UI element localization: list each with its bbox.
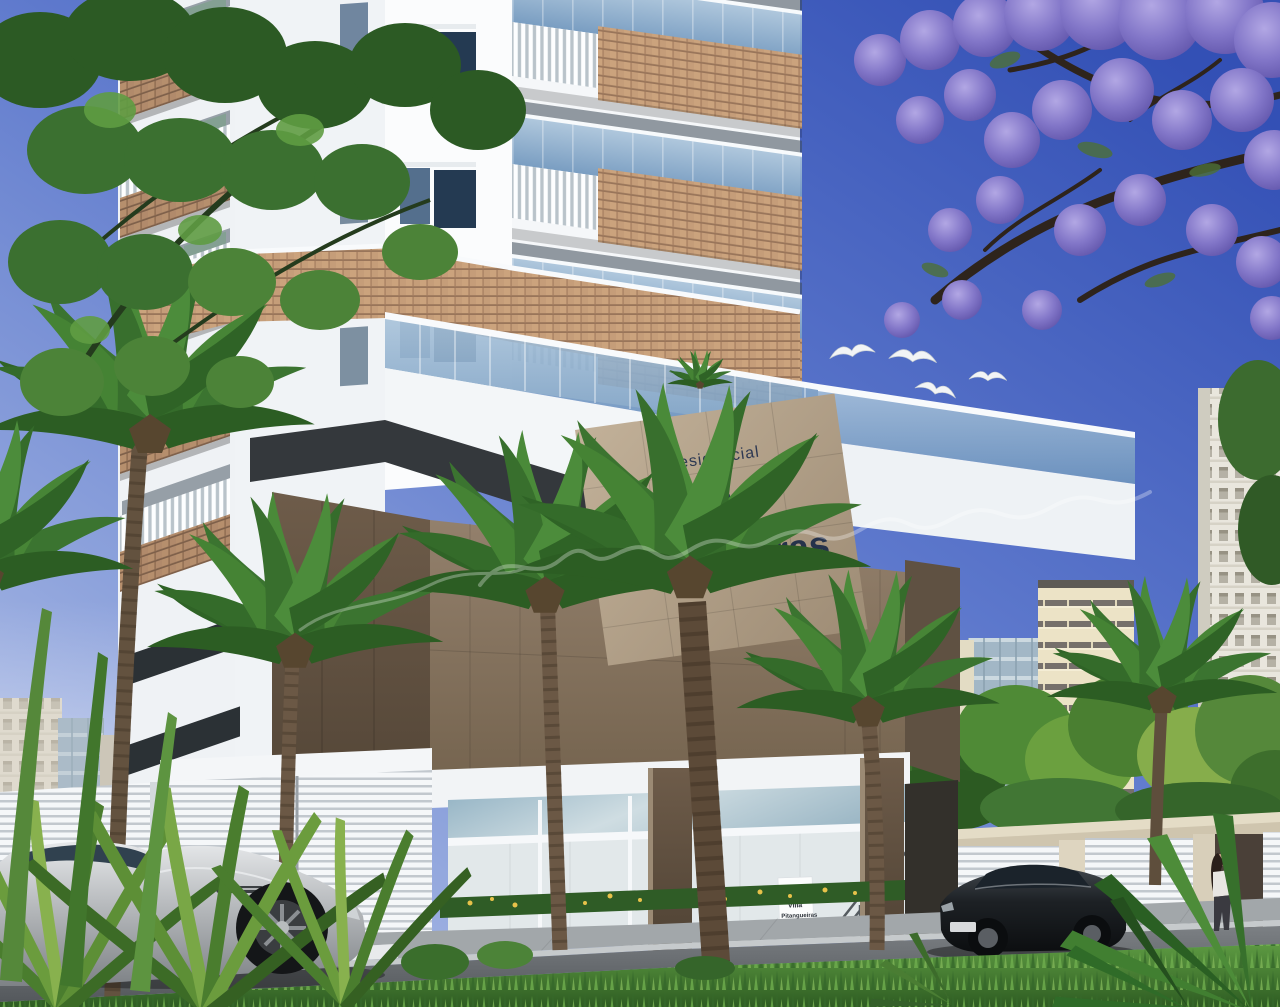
bush	[401, 944, 469, 980]
bush	[477, 941, 533, 969]
render-canvas: Residencial Villa Pitangueiras Residenci…	[0, 0, 1280, 1007]
bush	[675, 956, 735, 980]
architectural-render: Residencial Villa Pitangueiras Residenci…	[0, 0, 1280, 1007]
license-plate	[950, 922, 976, 932]
